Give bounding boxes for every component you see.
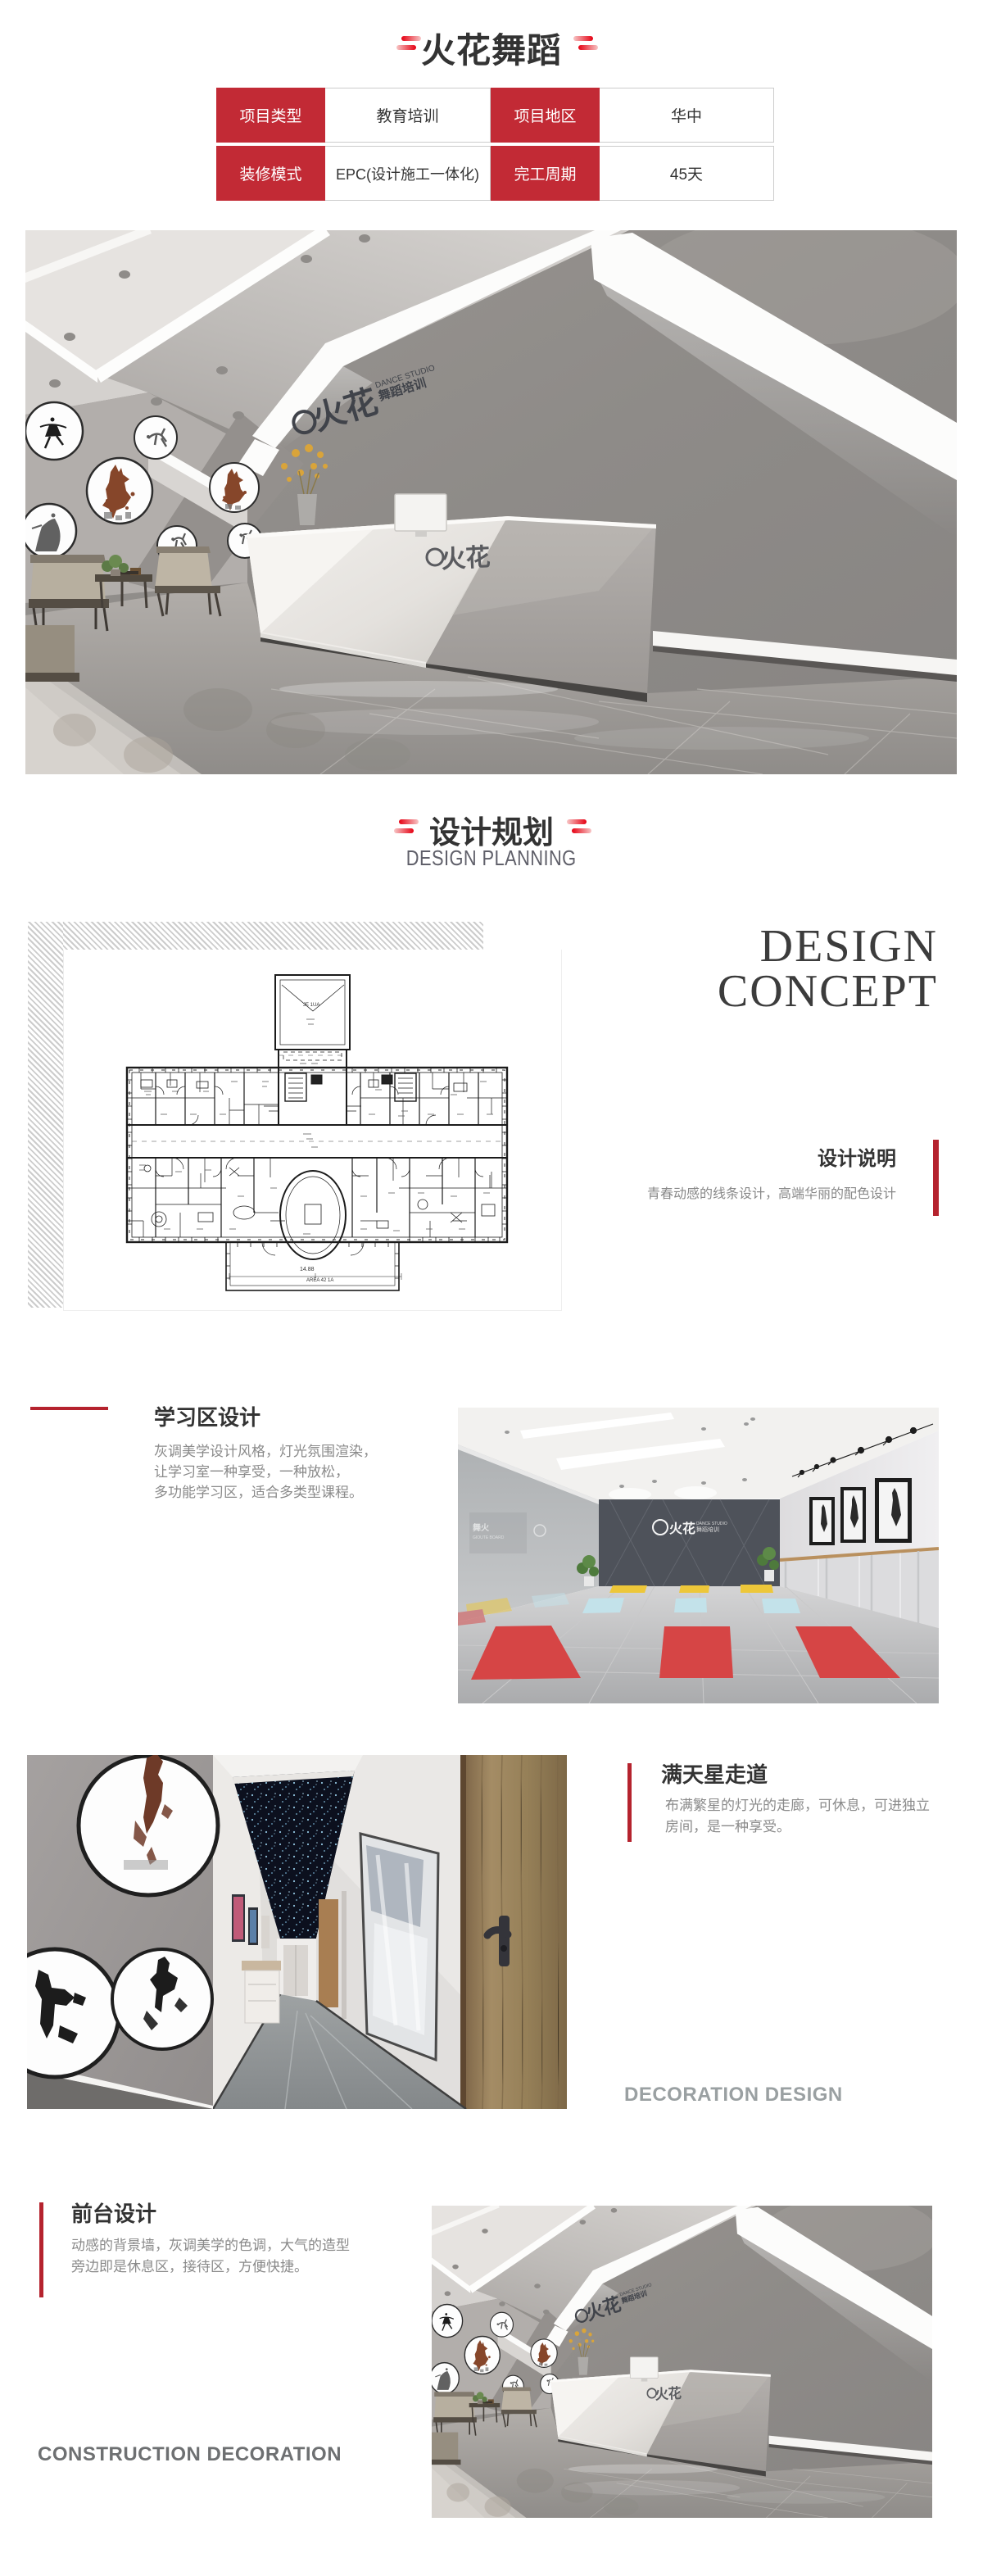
svg-text:AREA 42 1A: AREA 42 1A xyxy=(306,1278,333,1283)
svg-text:14.88: 14.88 xyxy=(300,1267,315,1272)
svg-text:火花: 火花 xyxy=(669,1521,695,1536)
svg-text:GIOUTE BOARD: GIOUTE BOARD xyxy=(473,1535,505,1540)
svg-text:舞火: 舞火 xyxy=(473,1522,490,1533)
svg-text:JE 1UA: JE 1UA xyxy=(303,1003,319,1008)
svg-text:DANCE STUDIO: DANCE STUDIO xyxy=(696,1522,727,1526)
svg-text:舞蹈培训: 舞蹈培训 xyxy=(696,1526,719,1533)
